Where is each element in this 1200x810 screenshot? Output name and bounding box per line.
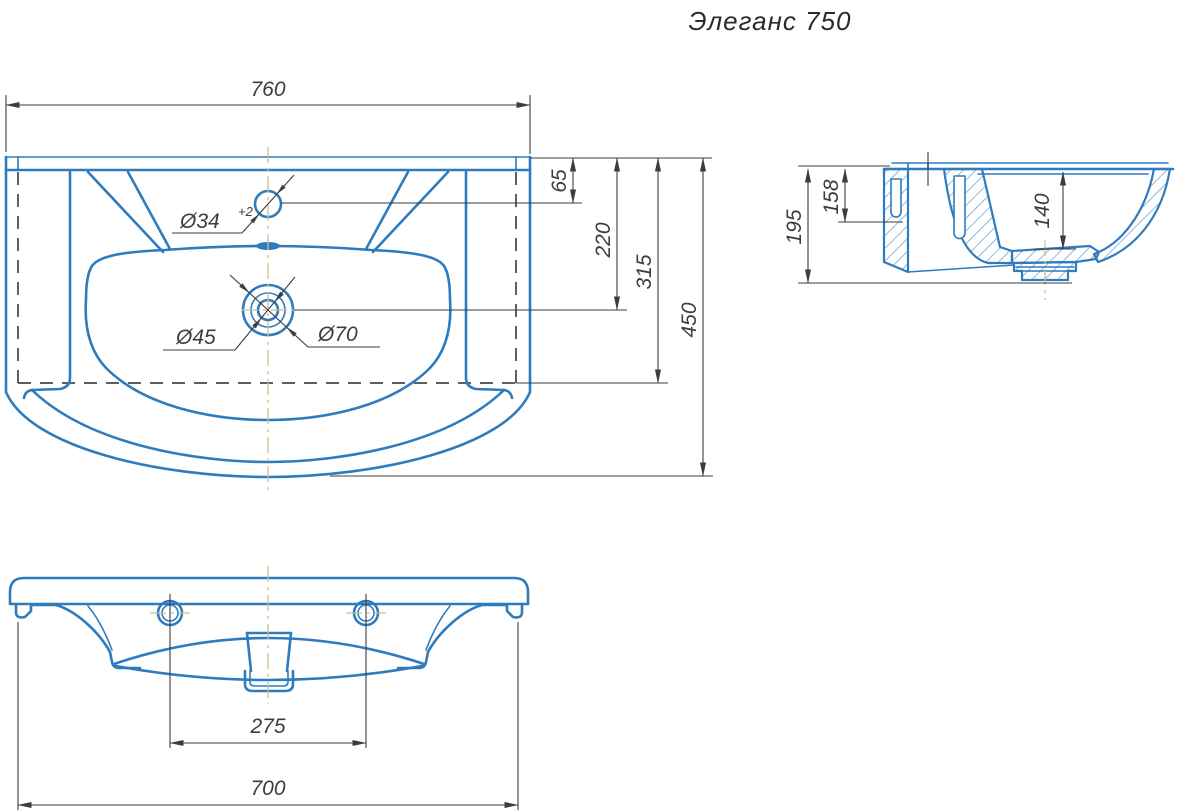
drawing-title: Элеганс 750 <box>688 6 851 36</box>
right-hook <box>507 604 522 617</box>
top-view-dimensions: 760 65 220 315 450 <box>6 78 713 476</box>
overflow-channel <box>954 176 965 239</box>
dim-65: 65 <box>548 169 571 193</box>
front-apron-section <box>1094 169 1170 262</box>
left-hook <box>16 604 31 617</box>
dim-158: 158 <box>820 179 843 214</box>
mounting-slot <box>891 179 901 217</box>
drain-hole: Ø45 Ø70 <box>163 275 380 350</box>
dim-275: 275 <box>249 715 285 738</box>
drain-inner-dia-label: Ø45 <box>175 326 216 349</box>
front-rim-band <box>10 578 528 604</box>
top-view: Ø34 +2 Ø45 Ø70 <box>6 78 713 492</box>
faucet-dia-tolerance: +2 <box>238 204 254 219</box>
dim-140: 140 <box>1031 193 1054 228</box>
dim-700: 700 <box>250 777 285 800</box>
dim-195: 195 <box>783 209 806 244</box>
faucet-hole: Ø34 +2 <box>172 175 294 233</box>
technical-drawing: Элеганс 750 <box>0 0 1200 810</box>
lens-lower-arc <box>116 666 422 680</box>
lens-upper-arc <box>114 638 424 664</box>
dim-450: 450 <box>678 302 701 337</box>
faucet-dia-label: Ø34 <box>179 210 220 233</box>
dim-760: 760 <box>250 78 285 101</box>
side-view: 195 158 140 <box>783 152 1173 300</box>
dim-315: 315 <box>633 254 656 289</box>
drawing-sheet: Элеганс 750 <box>0 0 1200 810</box>
dim-220: 220 <box>592 222 615 258</box>
front-drain-boss <box>245 633 293 691</box>
front-view: 275 700 <box>10 566 528 810</box>
drain-outer-dia-label: Ø70 <box>317 323 358 346</box>
